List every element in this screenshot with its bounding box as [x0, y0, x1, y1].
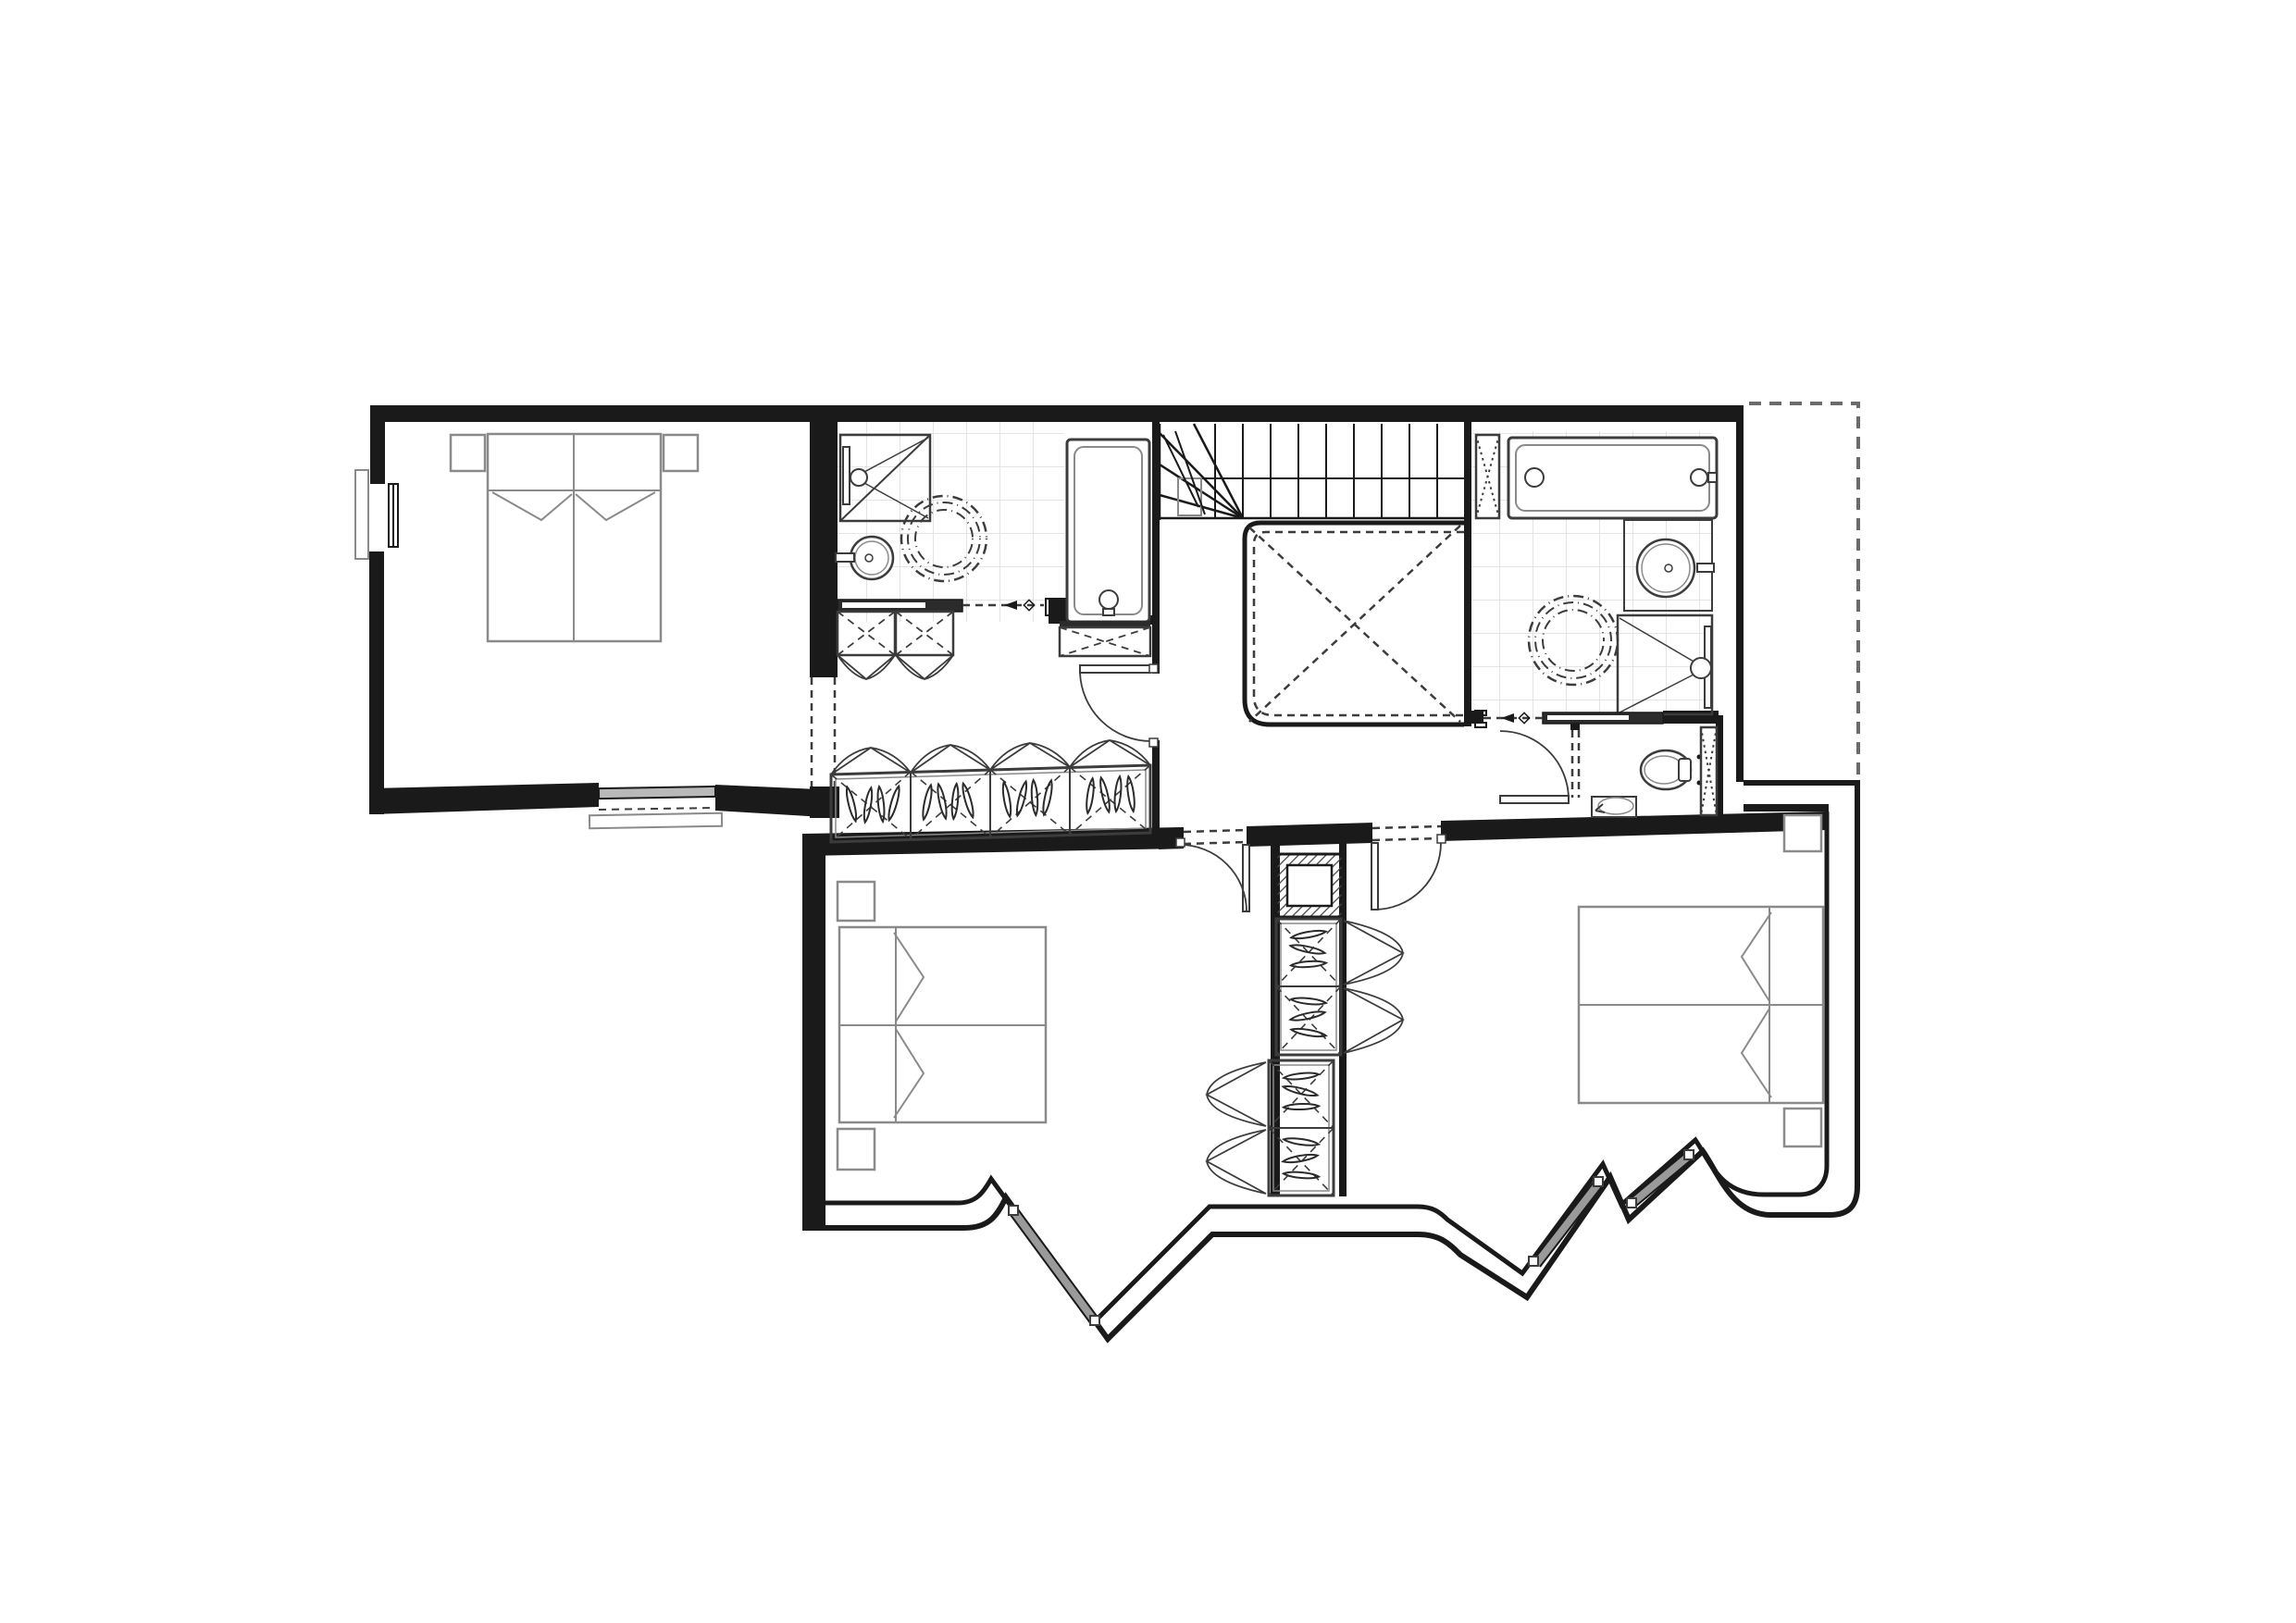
shower-head-icon: [1691, 658, 1711, 678]
wall-bd1-east-stub: [810, 787, 839, 818]
wall-jog-inner: [1744, 804, 1829, 811]
bedroom-3: [1579, 815, 1823, 1146]
service-shaft: [1276, 854, 1343, 917]
nightstand: [664, 435, 698, 471]
double-bed-3: [1579, 907, 1823, 1103]
toilet: [1641, 750, 1702, 789]
wall-bd1-south-left: [372, 783, 599, 814]
floor-void: [1245, 523, 1464, 725]
wall-bd2-west: [802, 834, 825, 1228]
void-cross-mark: [1249, 526, 1460, 722]
wall-post: [1603, 1164, 1629, 1220]
bedroom-1: [451, 434, 698, 641]
nightstand: [838, 882, 875, 921]
wall-bd1-east: [810, 422, 838, 677]
nightstand: [1784, 1109, 1821, 1146]
wardrobe-spine-left: [1207, 1060, 1334, 1196]
drain-icon: [1525, 468, 1544, 487]
floor-plan: [0, 0, 2296, 1623]
adjacent-roof-dashed-outline: [1749, 403, 1858, 777]
towel-radiator: [1476, 435, 1499, 518]
nightstand: [1784, 815, 1821, 851]
wardrobe-fan-doors: [831, 740, 1150, 774]
shower-head-bar-icon: [843, 447, 850, 504]
wall-stair-bath2: [1464, 422, 1471, 726]
wall-left-upper: [370, 405, 385, 484]
wardrobe-long: [831, 740, 1150, 842]
wc-radiator: [1701, 727, 1717, 815]
wall-top: [372, 405, 1744, 422]
bedroom-2: [838, 882, 1046, 1170]
dresser-x-3: [1060, 621, 1150, 656]
faucet-icon: [1099, 590, 1118, 609]
hangers: [1283, 1072, 1319, 1180]
wall-bath2-south-a: [1471, 711, 1483, 724]
faucet-icon: [836, 553, 854, 562]
window-dormer-c: [1627, 1150, 1694, 1208]
wardrobe-spine-right: [1276, 919, 1403, 1055]
wall-jog-outer: [1744, 780, 1860, 786]
wall-right-upper: [1736, 405, 1744, 782]
nightstand: [451, 435, 485, 471]
door-bedroom-2: [1176, 830, 1249, 911]
double-bed-2: [839, 927, 1046, 1122]
door-bedroom-3: [1371, 826, 1446, 910]
wall-hall-south-b: [1247, 823, 1372, 847]
wall-hall-west-b: [1152, 740, 1160, 830]
window-dormer-a: [1009, 1206, 1099, 1325]
window-dormer-b: [1529, 1177, 1603, 1267]
doors: [812, 664, 1446, 911]
wc-door: [1500, 731, 1569, 803]
staircase: [1160, 424, 1464, 520]
wall-bath2-south-b: [1663, 711, 1719, 724]
faucet-icon: [1691, 469, 1707, 486]
window-sill: [355, 470, 368, 559]
hangers: [1290, 929, 1326, 1039]
wall-left-lower: [369, 551, 384, 814]
bathtub-2: [1508, 438, 1717, 518]
faucet-icon: [1697, 564, 1714, 572]
nightstand: [838, 1129, 875, 1170]
wc: [1500, 727, 1717, 817]
doorway-bedroom-1: [812, 677, 835, 787]
bathtub-1: [1067, 440, 1149, 622]
hand-basin: [1592, 797, 1636, 817]
double-bed-1: [488, 434, 661, 641]
window-sill: [590, 813, 722, 828]
floor-plan-canvas: [0, 0, 2296, 1623]
dressing-storage: [831, 612, 1150, 842]
window-south-frame: [599, 787, 715, 799]
door-dressing: [1080, 664, 1158, 747]
